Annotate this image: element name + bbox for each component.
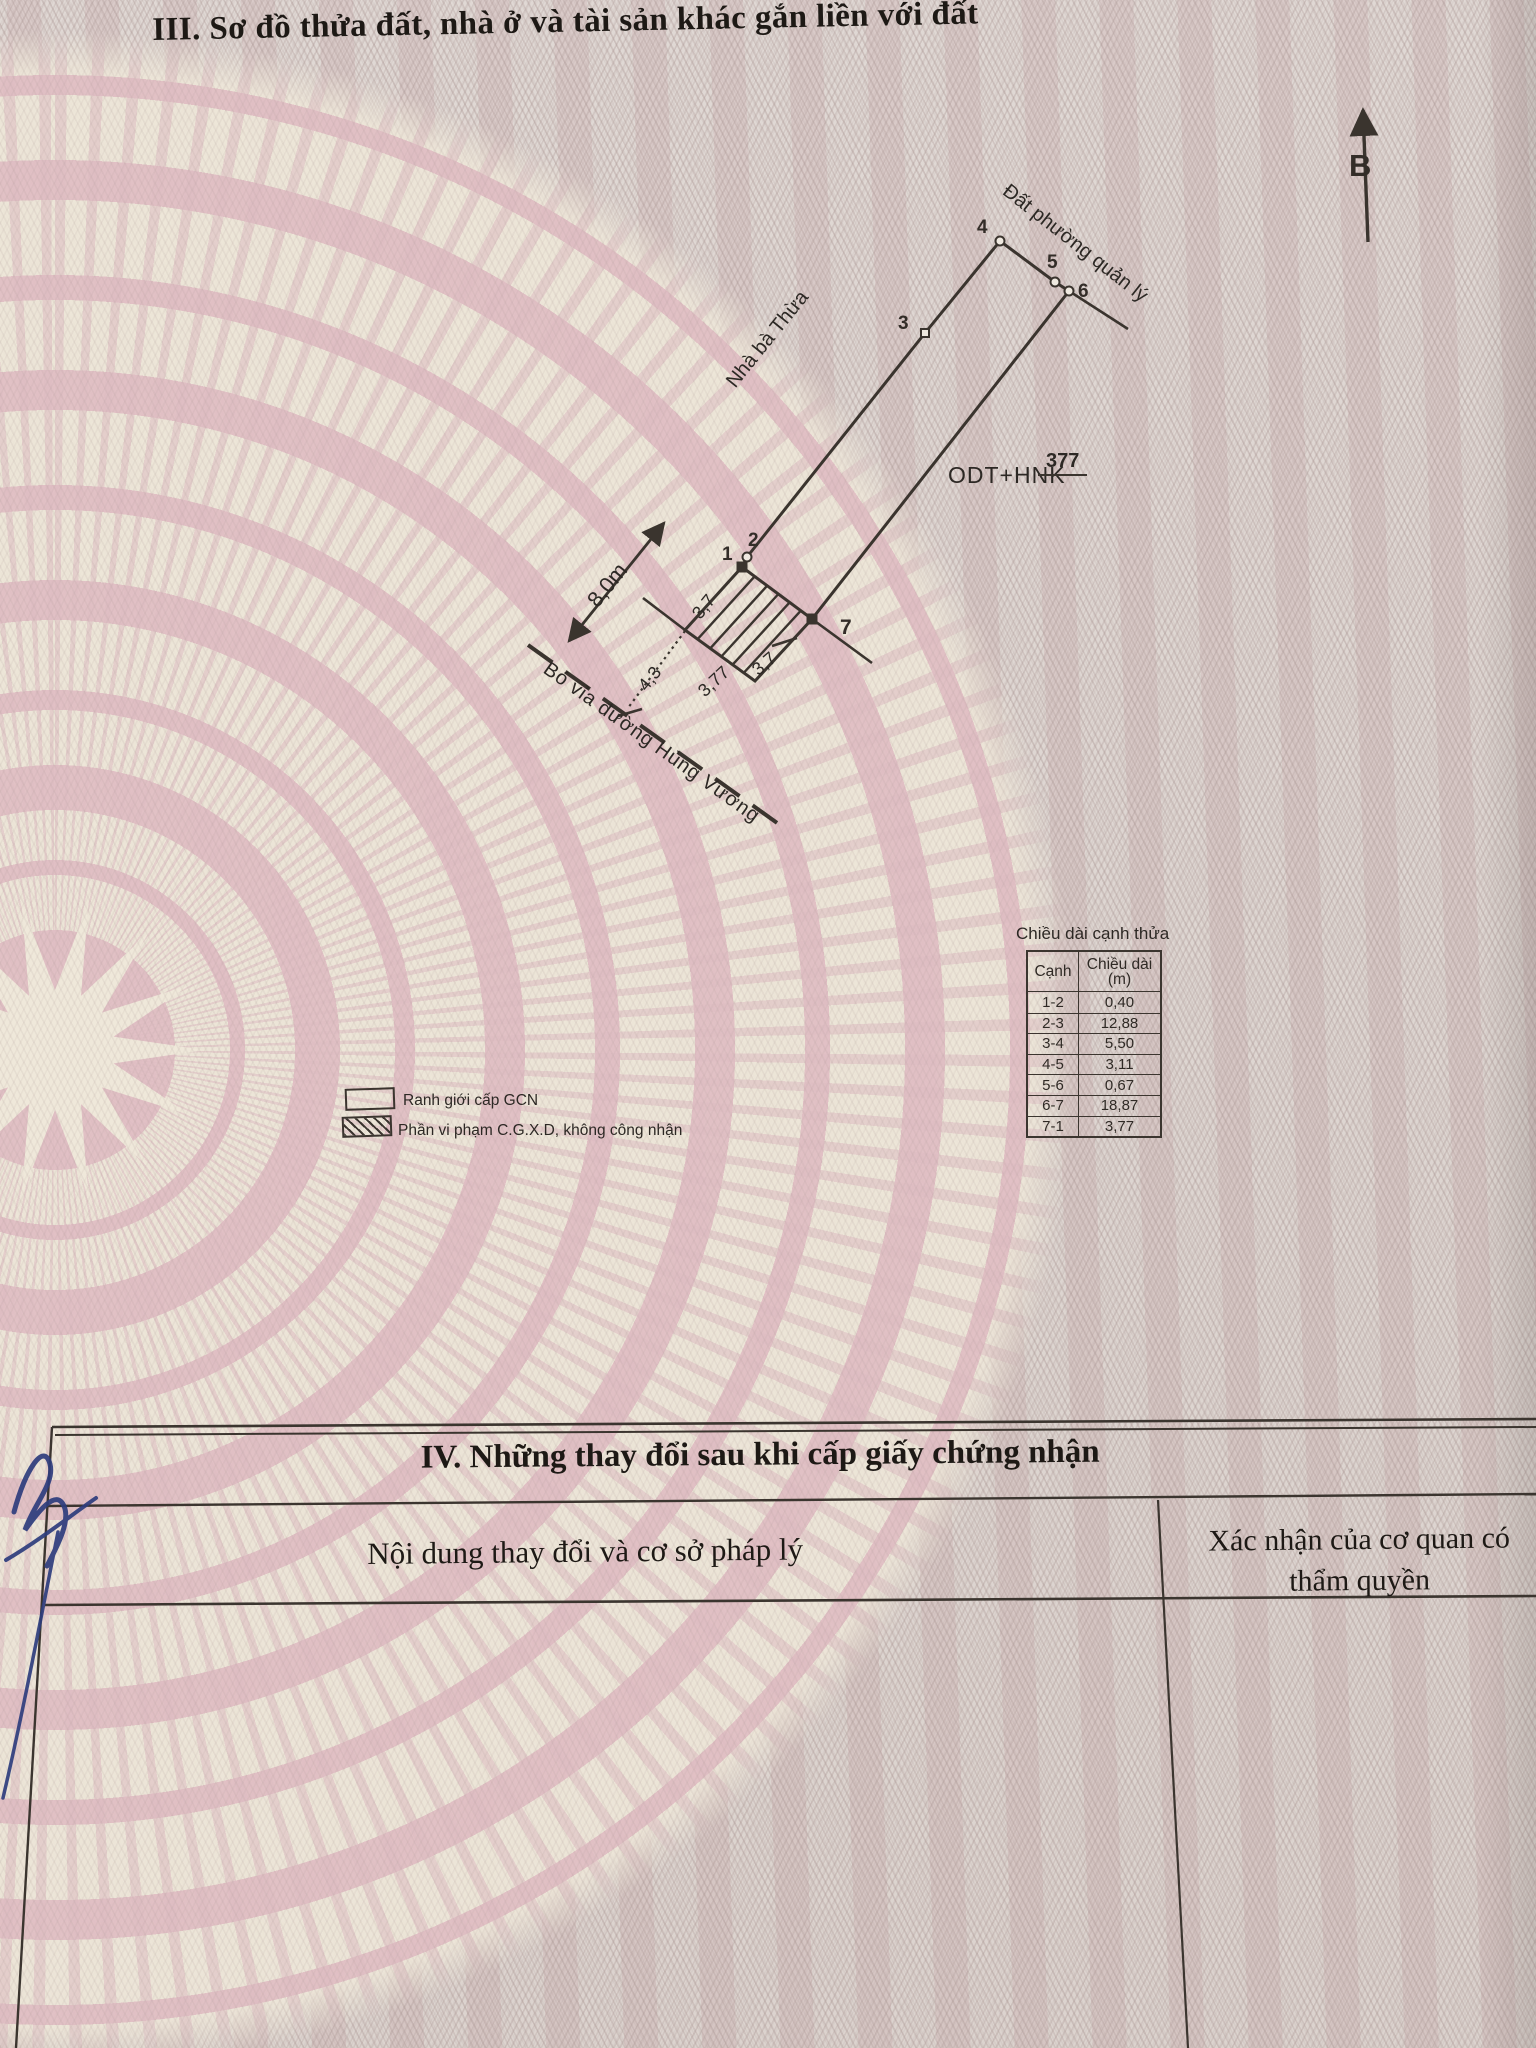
- legend-boundary-swatch: [345, 1087, 396, 1111]
- point-6: 6: [1078, 281, 1089, 303]
- dim-8m-label: 8,0m: [582, 558, 633, 612]
- mesh-overlay: [0, 0, 1536, 2048]
- edge-table-row: 6-718,87: [1028, 1095, 1160, 1116]
- section4-borders: [16, 1419, 1536, 2048]
- edge-table-row: 4-53,11: [1028, 1054, 1160, 1075]
- section4-col-left-header: Nội dung thay đổi và cơ sở pháp lý: [275, 1531, 895, 1573]
- edge-table-col1-header: Cạnh: [1028, 952, 1078, 991]
- dim-37-left-label: 3,7: [688, 591, 720, 624]
- diagram-svg: [0, 0, 1536, 2048]
- section4-title: IV. Những thay đổi sau khi cấp giấy chứn…: [380, 1433, 1140, 1477]
- guilloche-background: [0, 0, 1536, 2048]
- bronze-drum-watermark: [0, 0, 1536, 2048]
- edge-table-row: 3-45,50: [1028, 1033, 1160, 1054]
- edge-length-cell: 0,67: [1078, 1075, 1160, 1095]
- point-4: 4: [977, 217, 988, 239]
- edge-table-row: 2-312,88: [1028, 1013, 1160, 1034]
- edge-table-col2-header: Chiều dài (m): [1078, 952, 1160, 991]
- parcel-number: 377: [1038, 450, 1087, 476]
- edge-length-cell: 5,50: [1078, 1034, 1160, 1054]
- edge-table-row: 7-13,77: [1028, 1116, 1160, 1137]
- dim-43-label: 4,3: [634, 663, 666, 696]
- edge-table-row: 1-20,40: [1028, 992, 1160, 1013]
- edge-table: Cạnh Chiều dài (m) 1-20,402-312,883-45,5…: [1026, 950, 1162, 1138]
- edge-length-cell: 3,11: [1078, 1055, 1160, 1075]
- edge-name-cell: 7-1: [1028, 1117, 1078, 1137]
- edge-table-header: Cạnh Chiều dài (m): [1028, 952, 1160, 992]
- certificate-page: III. Sơ đồ thửa đất, nhà ở và tài sản kh…: [0, 0, 1536, 2048]
- point-7: 7: [840, 616, 852, 640]
- col2-line1: Chiều dài: [1087, 957, 1153, 972]
- edge-table-row: 5-60,67: [1028, 1074, 1160, 1095]
- point-2: 2: [748, 530, 759, 552]
- edge-length-cell: 0,40: [1078, 992, 1160, 1013]
- north-label: B: [1349, 148, 1371, 184]
- edge-name-cell: 5-6: [1028, 1075, 1078, 1095]
- legend-violation-swatch: [342, 1115, 393, 1138]
- point-3: 3: [898, 313, 909, 335]
- edge-name-cell: 4-5: [1028, 1055, 1078, 1075]
- edge-name-cell: 6-7: [1028, 1096, 1078, 1116]
- pen-scribble: [3, 1456, 96, 1798]
- edge-table-rows: 1-20,402-312,883-45,504-53,115-60,676-71…: [1028, 992, 1160, 1136]
- section4-col-right-header: Xác nhận của cơ quan có thẩm quyền: [1175, 1518, 1536, 1603]
- col2-line2: (m): [1108, 972, 1131, 987]
- edge-name-cell: 1-2: [1028, 992, 1078, 1013]
- drum-star-svg: [0, 0, 1536, 2048]
- edge-length-cell: 18,87: [1078, 1096, 1160, 1116]
- dim-377-label: 3,77: [694, 662, 734, 701]
- edge-length-cell: 3,77: [1078, 1117, 1160, 1137]
- edge-name-cell: 2-3: [1028, 1014, 1078, 1034]
- edge-length-cell: 12,88: [1078, 1014, 1160, 1034]
- point-1: 1: [722, 544, 733, 566]
- point-5: 5: [1047, 252, 1058, 274]
- dim-37-right-label: 3,7: [748, 648, 781, 680]
- adjacent-land-label: Đất phường quản lý: [998, 180, 1152, 308]
- edge-table-title: Chiều dài cạnh thửa: [1016, 924, 1169, 944]
- legend-boundary-label: Ranh giới cấp GCN: [403, 1092, 538, 1110]
- neighbor-house-label: Nhà bà Thừa: [722, 287, 814, 393]
- edge-name-cell: 3-4: [1028, 1034, 1078, 1054]
- legend-violation-label: Phần vi phạm C.G.X.D, không công nhận: [398, 1122, 682, 1140]
- section3-title: III. Sơ đồ thửa đất, nhà ở và tài sản kh…: [152, 0, 979, 49]
- drum-star: [0, 904, 205, 1197]
